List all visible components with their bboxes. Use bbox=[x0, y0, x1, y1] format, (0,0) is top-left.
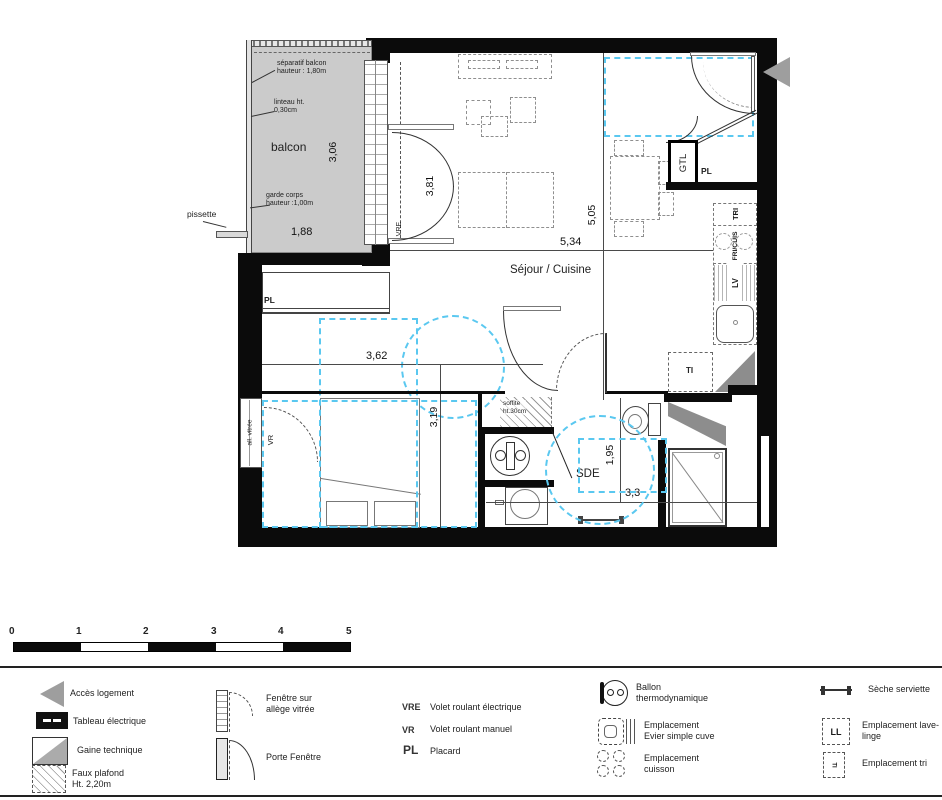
legend: Accès logement Tableau électrique Gaine … bbox=[0, 670, 942, 795]
armchair bbox=[510, 97, 536, 123]
dim-line-534 bbox=[390, 250, 757, 251]
dining-table bbox=[610, 156, 660, 220]
tri-glyph: TI bbox=[831, 762, 837, 767]
scale-tick-2: 2 bbox=[143, 626, 149, 638]
separator-bottom bbox=[0, 795, 942, 797]
entry-door-leaf bbox=[751, 56, 755, 112]
vre-text: Volet roulant électrique bbox=[430, 702, 522, 713]
sde-door-arc bbox=[556, 333, 606, 391]
balcony-separator bbox=[246, 40, 372, 47]
washbasin-bowl bbox=[510, 489, 540, 519]
scale-tick-1: 1 bbox=[76, 626, 82, 638]
acces-icon bbox=[40, 681, 64, 707]
scale-bar-segments bbox=[13, 642, 351, 652]
toilet-tank bbox=[648, 403, 661, 436]
fenetre-icon bbox=[216, 690, 252, 734]
french-window-mullion bbox=[375, 60, 376, 245]
chair-right-2 bbox=[658, 192, 674, 216]
faux-plafond-icon bbox=[32, 765, 66, 793]
chambre-door-arc bbox=[503, 311, 558, 391]
seche-serviette-icon bbox=[820, 686, 852, 696]
chair-bottom bbox=[614, 221, 644, 237]
ballon-label: Ballon thermodynamique bbox=[636, 682, 708, 705]
vre-abbr: VRE bbox=[402, 702, 421, 713]
scale-tick-0: 0 bbox=[9, 626, 15, 638]
floor-plan: séparatif balcon hauteur : 1,80m linteau… bbox=[0, 0, 942, 620]
wall-bottom bbox=[238, 527, 777, 547]
shower-drain bbox=[714, 453, 720, 459]
porte-fenetre-label: Porte Fenêtre bbox=[266, 752, 321, 763]
pl-abbr: PL bbox=[403, 743, 418, 758]
seche-serviette-label: Sèche serviette bbox=[868, 684, 930, 695]
french-window bbox=[364, 60, 388, 245]
note-garde-corps: garde corps hauteur :1,00m bbox=[266, 192, 313, 209]
wall-hall-1 bbox=[262, 391, 505, 394]
ballon-icon bbox=[600, 680, 628, 708]
chambre-pl-label: PL bbox=[264, 295, 275, 305]
dim-balcony-height: 3,06 bbox=[326, 132, 340, 172]
gaine-icon bbox=[32, 737, 68, 765]
sejour-label: Séjour / Cuisine bbox=[510, 264, 591, 278]
coffee-table-divider bbox=[506, 172, 507, 228]
evier-icon bbox=[598, 718, 638, 746]
ballon-knob-1 bbox=[495, 450, 506, 461]
dim-balcony-width: 1,88 bbox=[291, 226, 312, 239]
wall-hall-2 bbox=[605, 391, 668, 394]
accessibility-circle-sde bbox=[545, 415, 655, 525]
balcony-railing bbox=[246, 40, 252, 253]
faux-plafond-label: Faux plafond Ht. 2,20m bbox=[72, 768, 124, 791]
porte-fenetre-icon bbox=[216, 738, 252, 782]
soffite-label: soffite ht.30cm bbox=[503, 400, 526, 415]
gaine-label: Gaine technique bbox=[77, 745, 143, 756]
wall-top bbox=[372, 38, 777, 53]
allege-label: all. vitrée bbox=[244, 407, 257, 459]
dim-bay: 3,81 bbox=[423, 166, 437, 206]
entry-pl-label: PL bbox=[701, 166, 712, 176]
wall-channel bbox=[761, 436, 769, 527]
vr-text: Volet roulant manuel bbox=[430, 724, 512, 735]
cuisson-icon bbox=[597, 750, 627, 778]
lave-linge-label: Emplacement lave- linge bbox=[862, 720, 939, 743]
vr-abbr: VR bbox=[402, 725, 415, 736]
pl-text: Placard bbox=[430, 746, 461, 757]
pissette-label: pissette bbox=[187, 209, 216, 219]
placard-front bbox=[262, 308, 390, 313]
closet-door-arc bbox=[666, 116, 698, 143]
dim-sejour-width: 5,34 bbox=[560, 236, 581, 249]
sideboard-inner2 bbox=[506, 60, 538, 69]
acces-label: Accès logement bbox=[70, 688, 134, 699]
tri-legend-icon: TI bbox=[823, 752, 845, 778]
ballon-knob-2 bbox=[515, 450, 526, 461]
gtl-label: GTL bbox=[676, 143, 690, 183]
lv-label: LV bbox=[728, 263, 742, 303]
door-jamb-top bbox=[388, 124, 454, 130]
cuisson-label: Emplacement cuisson bbox=[644, 753, 699, 776]
pissette-icon bbox=[216, 231, 248, 238]
side-table2 bbox=[481, 116, 508, 137]
evier-label: Emplacement Evier simple cuve bbox=[644, 720, 715, 743]
dim-sejour-height: 5,05 bbox=[585, 195, 599, 235]
lave-linge-icon: LL bbox=[822, 718, 850, 745]
scale-tick-4: 4 bbox=[278, 626, 284, 638]
pissette-leader bbox=[203, 221, 227, 228]
fenetre-label: Fenêtre sur allège vitrée bbox=[266, 693, 315, 716]
note-linteau: linteau ht. 0,30cm bbox=[274, 99, 304, 116]
sideboard-inner bbox=[468, 60, 500, 69]
tri-legend-label: Emplacement tri bbox=[862, 758, 927, 769]
closet-wall-bottom bbox=[478, 480, 554, 487]
scale-tick-5: 5 bbox=[346, 626, 352, 638]
scale-tick-3: 3 bbox=[211, 626, 217, 638]
tableau-label: Tableau électrique bbox=[73, 716, 146, 727]
ballon-band bbox=[506, 442, 515, 470]
ll-glyph: LL bbox=[831, 727, 842, 737]
separator-top bbox=[0, 666, 942, 668]
balcony-dashed-edge bbox=[254, 52, 370, 53]
ti-label: TI bbox=[686, 366, 693, 375]
sink-drain bbox=[733, 320, 738, 325]
gaine-triangle-2 bbox=[668, 402, 726, 446]
closet-wall-left bbox=[478, 427, 485, 527]
wall-closet-bottom bbox=[666, 182, 760, 190]
wall-shower-top bbox=[664, 393, 732, 402]
note-separatif: séparatif balcon hauteur : 1,80m bbox=[277, 60, 326, 77]
closet-wall-top bbox=[478, 427, 554, 434]
chair-top bbox=[614, 140, 644, 156]
balcony-label: balcon bbox=[271, 140, 306, 154]
tableau-icon bbox=[36, 712, 68, 729]
wall-jog bbox=[728, 385, 759, 395]
scale-bar: 0 1 2 3 4 5 bbox=[13, 626, 351, 654]
